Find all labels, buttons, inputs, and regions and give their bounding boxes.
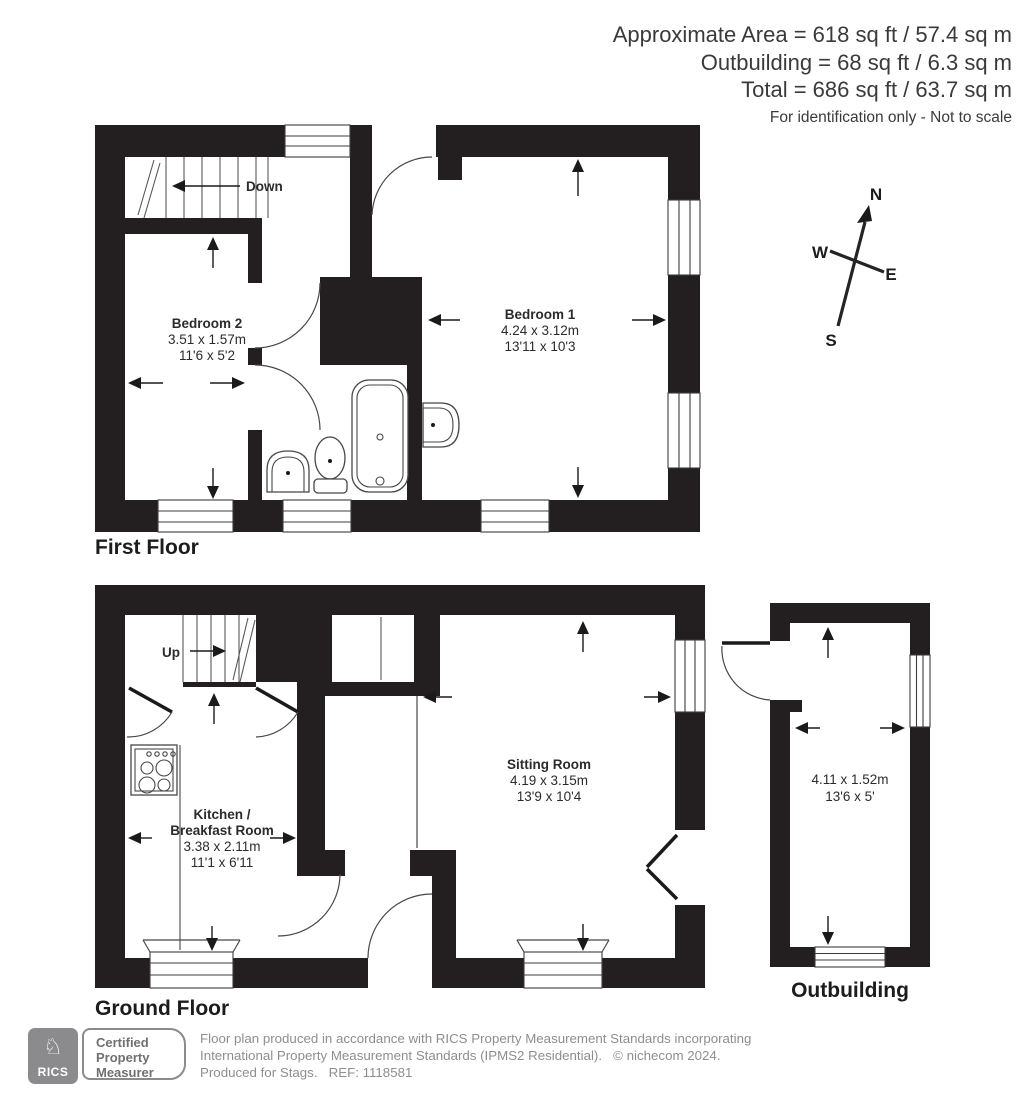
sitting-window-sill xyxy=(517,940,609,952)
kitchen-metric: 3.38 x 2.11m xyxy=(183,839,260,854)
ground-floor-outer-walls xyxy=(95,585,705,988)
bedroom1-name: Bedroom 1 xyxy=(505,307,576,322)
stair-door-leaf-right xyxy=(256,688,298,712)
floor-plan-drawing: Approximate Area = 618 sq ft / 57.4 sq m… xyxy=(0,0,1024,1104)
bedroom2-name: Bedroom 2 xyxy=(172,316,243,331)
compass-rose: N W E S xyxy=(812,185,897,350)
compass-w-label: W xyxy=(812,243,829,262)
bathtub xyxy=(352,380,408,492)
outbuilding-metric: 4.11 x 1.52m xyxy=(811,772,888,787)
down-arrow-head xyxy=(172,180,185,192)
kitchen-imperial: 11'1 x 6'11 xyxy=(191,855,253,870)
kitchen-name-line1: Kitchen / xyxy=(193,807,250,822)
outbuilding-door xyxy=(722,643,770,700)
sitting-room-metric: 4.19 x 3.15m xyxy=(510,773,588,788)
outbuilding-area-text: Outbuilding = 68 sq ft / 6.3 sq m xyxy=(701,50,1012,75)
french-door-leaf-top xyxy=(647,835,677,867)
bedroom1-metric: 4.24 x 3.12m xyxy=(501,323,579,338)
identification-disclaimer-text: For identification only - Not to scale xyxy=(770,109,1012,126)
outbuilding-label: Outbuilding xyxy=(791,979,909,1002)
kitchen-name-line2: Breakfast Room xyxy=(170,823,274,838)
badge-line3: Measurer xyxy=(96,1065,184,1080)
ground-floor-label: Ground Floor xyxy=(95,997,229,1020)
sitting-room-label: Sitting Room 4.19 x 3.15m 13'9 x 10'4 xyxy=(507,757,591,804)
ground-floor-dimension-arrows xyxy=(128,621,671,951)
bedroom1-label: Bedroom 1 4.24 x 3.12m 13'11 x 10'3 xyxy=(501,307,579,354)
compass-north-arrowhead xyxy=(857,205,872,223)
bedroom2-label: Bedroom 2 3.51 x 1.57m 11'6 x 5'2 xyxy=(168,316,246,363)
bedroom1-imperial: 13'11 x 10'3 xyxy=(505,339,576,354)
bedroom2-imperial: 11'6 x 5'2 xyxy=(179,348,235,363)
outbuilding-plan: 4.11 x 1.52m 13'6 x 5' xyxy=(722,603,930,967)
ground-floor-plan: Up xyxy=(95,585,705,988)
up-arrow-head xyxy=(213,645,226,657)
approximate-area-text: Approximate Area = 618 sq ft / 57.4 sq m xyxy=(613,22,1012,47)
certified-property-measurer-badge: Certified Property Measurer xyxy=(82,1028,186,1080)
badge-line2: Property xyxy=(96,1050,184,1065)
stair-break-lines xyxy=(233,618,255,682)
first-floor-label: First Floor xyxy=(95,536,199,559)
footer-disclaimer-line2: International Property Measurement Stand… xyxy=(200,1047,800,1064)
kitchen-window-sill xyxy=(143,940,240,952)
total-area-text: Total = 686 sq ft / 63.7 sq m xyxy=(741,77,1012,102)
header-text: Approximate Area = 618 sq ft / 57.4 sq m… xyxy=(613,22,1012,126)
down-stairs-label: Down xyxy=(246,179,283,194)
footer-disclaimer-line3: Produced for Stags. REF: 1118581 xyxy=(200,1064,800,1081)
sitting-room-imperial: 13'9 x 10'4 xyxy=(517,789,582,804)
french-door-leaf-bottom xyxy=(647,869,677,899)
first-floor-interior-walls xyxy=(125,125,462,500)
stair-door-leaf-left xyxy=(129,688,172,712)
footer-disclaimer-line1: Floor plan produced in accordance with R… xyxy=(200,1030,800,1047)
kitchen-label: Kitchen / Breakfast Room 3.38 x 2.11m 11… xyxy=(170,807,274,870)
first-floor-plan: Down xyxy=(95,125,700,532)
bedroom1-door-arc xyxy=(372,157,432,215)
floorplan-page: Approximate Area = 618 sq ft / 57.4 sq m… xyxy=(0,0,1024,1104)
bedroom2-metric: 3.51 x 1.57m xyxy=(168,332,246,347)
badge-line1: Certified xyxy=(96,1035,184,1050)
rics-logo: ♘ RICS xyxy=(28,1028,78,1084)
bathroom-door-arc xyxy=(255,365,320,430)
compass-e-label: E xyxy=(885,265,896,284)
footer-disclaimer: Floor plan produced in accordance with R… xyxy=(200,1030,800,1081)
bedroom1-sink xyxy=(423,403,459,447)
first-floor-stairs: Down xyxy=(138,157,283,218)
rics-logo-text: RICS xyxy=(38,1065,69,1084)
kitchen-hall-door-arc xyxy=(278,874,340,936)
entrance-door-arc xyxy=(368,894,432,958)
stove xyxy=(131,745,177,795)
up-stairs-label: Up xyxy=(162,645,180,660)
rics-lion-icon: ♘ xyxy=(43,1028,63,1065)
kitchen-fixtures xyxy=(131,745,180,950)
ground-floor-interior-walls xyxy=(183,615,456,958)
compass-s-label: S xyxy=(825,331,836,350)
bathroom-fixtures xyxy=(267,380,459,493)
compass-ns-line xyxy=(838,222,865,326)
outbuilding-label-group: 4.11 x 1.52m 13'6 x 5' xyxy=(811,772,888,804)
outbuilding-imperial: 13'6 x 5' xyxy=(825,789,874,804)
toilet xyxy=(315,437,345,479)
sitting-room-name: Sitting Room xyxy=(507,757,591,772)
stair-break-lines xyxy=(138,160,160,218)
compass-n-label: N xyxy=(870,185,882,204)
bedroom2-door-arc xyxy=(255,283,320,348)
